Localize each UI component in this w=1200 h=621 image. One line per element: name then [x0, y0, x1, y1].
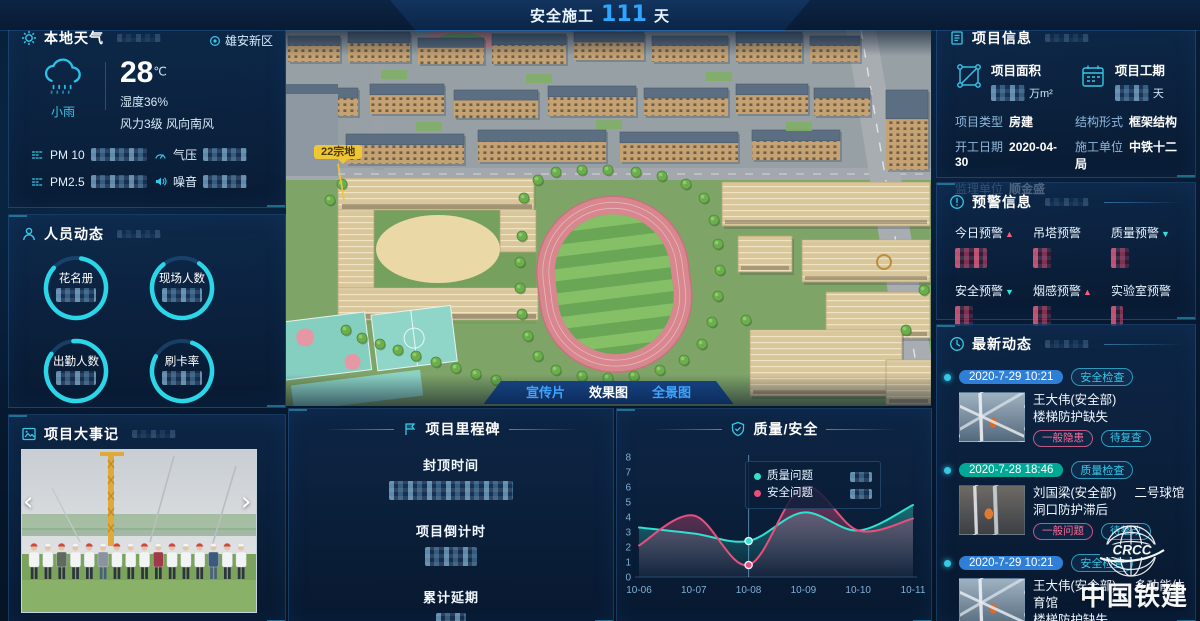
redacted-value	[850, 489, 872, 499]
update-thumbnail	[959, 485, 1025, 535]
warning-safety: 安全预警▼	[955, 282, 1029, 326]
svg-text:10-11: 10-11	[901, 585, 925, 596]
ring-label: 花名册	[41, 270, 111, 286]
chart-tooltip: 质量问题 安全问题	[745, 461, 881, 509]
update-thumbnail	[959, 578, 1025, 621]
svg-text:6: 6	[625, 483, 631, 494]
dashboard: 安全施工 111 天 22宗地 宣传片 效果图 全景图 本地天气 雄	[0, 0, 1200, 621]
trend-arrow-icon: ▼	[1161, 229, 1170, 239]
deco-line	[652, 429, 722, 430]
divider	[105, 62, 106, 110]
location-name: 雄安新区	[225, 32, 273, 49]
ring-attendance: 出勤人数	[41, 336, 111, 406]
redacted-value	[56, 288, 96, 302]
ring-label: 现场人数	[147, 270, 217, 286]
trend-arrow-icon: ▲	[1083, 287, 1092, 297]
parcel-pin-label: 22宗地	[314, 145, 362, 159]
location-pin-icon	[209, 35, 221, 47]
redacted-value	[1115, 85, 1149, 101]
svg-text:10-06: 10-06	[626, 585, 652, 596]
tooltip-row-quality: 质量问题	[754, 468, 872, 485]
svg-text:10-07: 10-07	[681, 585, 707, 596]
deco-line	[509, 429, 579, 430]
temperature-unit: ℃	[153, 65, 166, 79]
deco-line	[324, 429, 394, 430]
redacted-value	[162, 288, 202, 302]
document-icon	[949, 30, 965, 46]
svg-text:1: 1	[625, 558, 631, 569]
panel-project-info: 项目信息 项目面积 万m² 项目工期 天	[936, 18, 1196, 178]
redacted-value	[991, 85, 1025, 101]
svg-text:10-10: 10-10	[845, 585, 871, 596]
update-item[interactable]: 2020-7-29 10:21 安全检查 王大伟(安全部) 楼梯防护缺失 一般隐…	[937, 362, 1195, 455]
panel-personnel: 人员动态 花名册 现场人数 出勤人数 刷卡率	[8, 214, 286, 408]
shield-check-icon	[730, 421, 746, 437]
metric-pm10: PM 10	[31, 146, 148, 163]
redacted-value	[955, 248, 987, 268]
svg-text:2: 2	[625, 543, 631, 554]
milestone-label-delay: 累计延期	[289, 587, 613, 606]
stat-label: 项目工期	[1115, 60, 1165, 79]
panel-quality-safety: 质量/安全 01234567810-0610-0710-0810-0910-10…	[616, 408, 932, 621]
quality-chart[interactable]: 01234567810-0610-0710-0810-0910-1010-11 …	[617, 441, 931, 612]
deco-line	[1104, 344, 1183, 345]
group-photo	[22, 450, 256, 612]
update-time: 2020-7-28 18:46	[959, 463, 1063, 477]
redacted-value	[955, 306, 973, 326]
panel-local-weather: 本地天气 雄安新区 小雨 28℃ 湿度36% 风力3级 风向南风	[8, 18, 286, 208]
warning-smoke: 烟感预警▲	[1033, 282, 1107, 326]
crcc-mark: CRCC	[1113, 543, 1152, 558]
deco-line	[826, 429, 896, 430]
update-person: 刘国梁(安全部)	[1033, 486, 1116, 500]
redacted-value	[850, 472, 872, 482]
location-badge: 雄安新区	[209, 32, 273, 49]
timeline-dot	[944, 560, 951, 567]
updates-title: 最新动态	[972, 334, 1032, 354]
safety-series-label: 安全问题	[767, 485, 813, 502]
sun-gear-icon	[21, 30, 37, 46]
redacted-value	[91, 175, 147, 188]
metric-pm25: PM2.5	[31, 173, 148, 190]
condition-label: 小雨	[35, 103, 91, 120]
svg-text:7: 7	[625, 468, 631, 479]
redacted-value	[1033, 306, 1051, 326]
safe-days-unit: 天	[654, 5, 670, 26]
field-contractor: 施工单位中铁十二局	[1075, 138, 1185, 172]
warnings-title: 预警信息	[972, 192, 1032, 212]
redacted-value	[56, 371, 96, 385]
ring-swipe-rate: 刷卡率	[147, 336, 217, 406]
update-thumbnail	[959, 392, 1025, 442]
timeline-dot	[944, 374, 951, 381]
tab-promo-video[interactable]: 宣传片	[526, 381, 565, 404]
scene-viewport[interactable]: 22宗地 宣传片 效果图 全景图	[286, 30, 931, 406]
mist-icon	[31, 148, 44, 161]
svg-text:10-08: 10-08	[736, 585, 762, 596]
field-project-type: 项目类型房建	[955, 113, 1067, 130]
personnel-title: 人员动态	[44, 224, 104, 244]
timeline-dot	[944, 467, 951, 474]
quality-series-label: 质量问题	[767, 468, 813, 485]
ring-label: 刷卡率	[147, 353, 217, 369]
svg-text:10-09: 10-09	[791, 585, 817, 596]
header-deco	[1045, 198, 1089, 206]
trend-arrow-icon: ▼	[1005, 287, 1014, 297]
redacted-value	[389, 481, 513, 500]
weather-title: 本地天气	[44, 28, 104, 48]
metric-label: PM 10	[50, 148, 85, 162]
safe-days-prefix: 安全施工	[530, 5, 594, 26]
carousel-prev-button[interactable]: ‹	[23, 489, 41, 517]
mist-icon	[31, 175, 44, 188]
redacted-value	[91, 148, 147, 161]
header-deco	[117, 34, 161, 42]
metric-noise: 噪音	[154, 173, 271, 190]
redacted-value	[1033, 248, 1051, 268]
update-person: 王大伟(安全部)	[1033, 392, 1151, 409]
project-info-title: 项目信息	[972, 28, 1032, 48]
redacted-value	[436, 613, 466, 621]
stat-unit: 万m²	[1029, 85, 1053, 101]
warning-today: 今日预警▲	[955, 224, 1029, 268]
header-deco	[117, 230, 161, 238]
stat-project-duration: 项目工期 天	[1079, 60, 1165, 101]
events-title: 项目大事记	[44, 424, 119, 444]
picture-icon	[21, 426, 37, 442]
temperature-value: 28	[120, 56, 153, 89]
redacted-value	[1111, 248, 1129, 268]
milestone-label-topping: 封顶时间	[289, 455, 613, 474]
safe-days-title: 安全施工 111 天	[0, 0, 1200, 30]
ring-label: 出勤人数	[41, 353, 111, 369]
rain-cloud-icon	[40, 83, 86, 100]
gauge-icon	[154, 148, 167, 161]
svg-text:3: 3	[625, 528, 631, 539]
redacted-value	[1111, 306, 1123, 326]
speaker-icon	[154, 175, 167, 188]
area-measure-icon	[955, 62, 983, 90]
safety-series-dot	[754, 490, 761, 497]
stat-label: 项目面积	[991, 60, 1053, 79]
update-issue: 洞口防护滞后	[1033, 502, 1184, 519]
humidity-label: 湿度36%	[120, 93, 214, 110]
update-type-badge: 质量检查	[1071, 461, 1133, 479]
quality-series-dot	[754, 473, 761, 480]
svg-text:5: 5	[625, 498, 631, 509]
weather-condition: 小雨	[35, 58, 91, 120]
header-deco	[1045, 34, 1089, 42]
crcc-globe-icon: CRCC	[1096, 522, 1166, 584]
update-time: 2020-7-29 10:21	[959, 370, 1063, 384]
tooltip-row-safety: 安全问题	[754, 485, 872, 502]
update-time: 2020-7-29 10:21	[959, 556, 1063, 570]
panel-project-events: 项目大事记 ‹ ›	[8, 414, 286, 621]
field-start-date: 开工日期2020-04-30	[955, 138, 1067, 172]
update-type-badge: 安全检查	[1071, 368, 1133, 386]
calendar-icon	[1079, 62, 1107, 90]
header-deco	[132, 430, 176, 438]
ring-onsite: 现场人数	[147, 253, 217, 323]
ring-roster: 花名册	[41, 253, 111, 323]
stat-unit: 天	[1153, 85, 1164, 101]
metric-pressure: 气压	[154, 146, 271, 163]
milestone-label-countdown: 项目倒计时	[289, 521, 613, 540]
deco-line	[1104, 202, 1183, 203]
milestone-title: 项目里程碑	[426, 419, 501, 439]
event-photo[interactable]	[21, 449, 257, 613]
svg-text:4: 4	[625, 513, 631, 524]
update-location: 二号球馆	[1134, 486, 1184, 500]
warning-quality: 质量预警▼	[1111, 224, 1185, 268]
clock-icon	[949, 336, 965, 352]
metric-label: 气压	[173, 146, 197, 163]
trend-arrow-icon: ▲	[1005, 229, 1014, 239]
alert-bell-icon	[949, 194, 965, 210]
crcc-logo: CRCC 中国铁建	[1080, 522, 1198, 613]
panel-warnings: 预警信息 今日预警▲ 吊塔预警 质量预警▼ 安全预警▼ 烟感预警▲ 实验室预警	[936, 182, 1196, 320]
redacted-value	[203, 175, 247, 188]
parcel-pin[interactable]: 22宗地	[314, 142, 362, 160]
crcc-brand-text: 中国铁建	[1080, 576, 1198, 613]
tab-render-view[interactable]: 效果图	[589, 381, 628, 404]
tab-panorama[interactable]: 全景图	[652, 381, 691, 404]
update-issue: 楼梯防护缺失	[1033, 409, 1151, 426]
header-deco	[1045, 340, 1089, 348]
redacted-value	[203, 148, 247, 161]
hazard-tag: 一般隐患	[1033, 430, 1093, 447]
quality-title: 质量/安全	[754, 419, 819, 439]
update-issue: 楼梯防护缺失	[1033, 612, 1187, 621]
metric-label: 噪音	[173, 173, 197, 190]
status-tag: 待复查	[1101, 430, 1151, 447]
redacted-value	[162, 371, 202, 385]
aerial-render	[286, 30, 931, 406]
warning-crane: 吊塔预警	[1033, 224, 1107, 268]
warning-lab: 实验室预警	[1111, 282, 1185, 326]
top-header: 安全施工 111 天	[0, 0, 1200, 30]
person-icon	[21, 226, 37, 242]
svg-text:0: 0	[625, 573, 631, 584]
wind-label: 风力3级 风向南风	[120, 115, 214, 132]
stat-project-area: 项目面积 万m²	[955, 60, 1053, 101]
field-structure: 结构形式框架结构	[1075, 113, 1185, 130]
svg-text:8: 8	[625, 453, 631, 464]
panel-milestone: 项目里程碑 封顶时间 项目倒计时 累计延期	[288, 408, 614, 621]
carousel-next-button[interactable]: ›	[241, 489, 259, 517]
scene-tab-bar: 宣传片 效果图 全景图	[484, 381, 734, 404]
redacted-value	[425, 547, 477, 566]
flag-icon	[402, 421, 418, 437]
metric-label: PM2.5	[50, 175, 85, 189]
safe-days-count: 111	[601, 4, 647, 26]
